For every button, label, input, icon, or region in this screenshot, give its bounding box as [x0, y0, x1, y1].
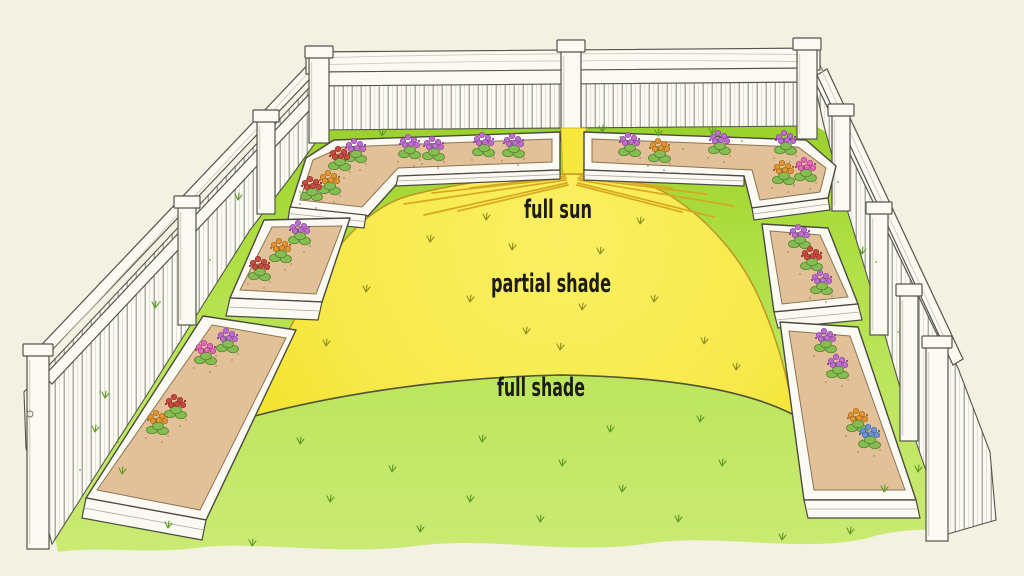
- grass-speck: [117, 441, 119, 443]
- zone-label-partial-shade: partial shade: [491, 269, 611, 299]
- grass-speck: [837, 181, 839, 183]
- fence-post: [866, 202, 892, 335]
- zone-label-full-sun: full sun: [524, 195, 592, 225]
- fence-post: [922, 336, 952, 541]
- garden-diagram: full sun partial shade full shade: [0, 0, 1024, 576]
- grass-speck: [79, 469, 81, 471]
- sun-gap-beam: [561, 128, 586, 176]
- grass-speck: [209, 259, 211, 261]
- zone-label-full-shade: full shade: [497, 373, 585, 403]
- grass-speck: [875, 261, 877, 263]
- fence-post: [23, 344, 53, 549]
- grass-speck: [682, 148, 684, 150]
- fence-post: [174, 196, 200, 325]
- fence-post: [557, 40, 585, 141]
- grass-speck: [299, 191, 301, 193]
- grass-speck: [897, 331, 899, 333]
- grass-speck: [159, 301, 161, 303]
- grass-speck: [99, 391, 101, 393]
- grass-speck: [359, 149, 361, 151]
- fence-post: [828, 104, 854, 211]
- garden-scene: full sun partial shade full shade: [0, 0, 1024, 576]
- grass-speck: [619, 136, 621, 138]
- fence-post: [896, 284, 922, 441]
- fence-post: [793, 38, 821, 139]
- grass-speck: [741, 140, 743, 142]
- fence-post: [253, 110, 279, 214]
- fence-post: [305, 46, 333, 143]
